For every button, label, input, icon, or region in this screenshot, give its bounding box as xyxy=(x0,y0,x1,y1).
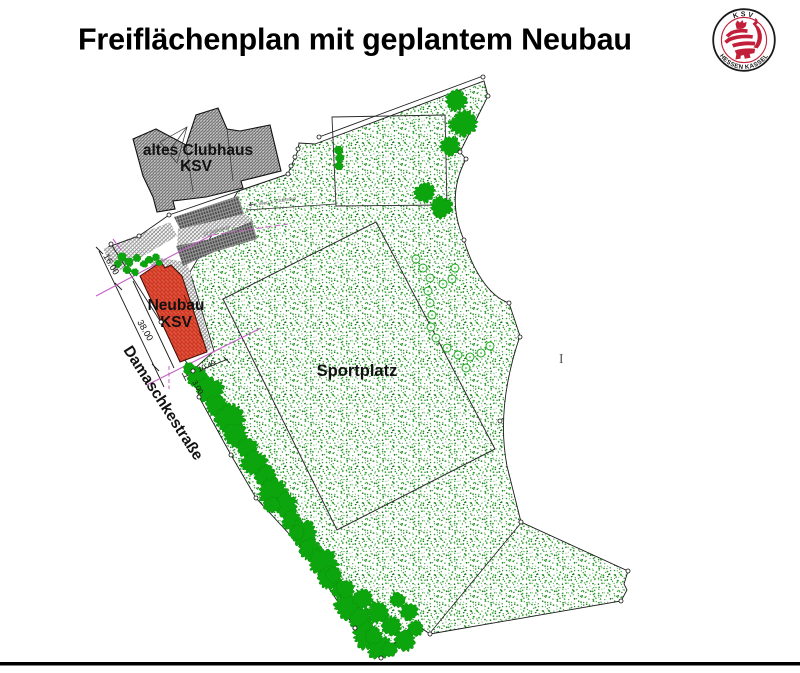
svg-text:KSV: KSV xyxy=(160,314,193,331)
svg-text:I: I xyxy=(559,351,564,366)
svg-text:Neubau: Neubau xyxy=(148,297,205,314)
svg-text:KSV: KSV xyxy=(180,158,213,175)
svg-text:altes Clubhaus: altes Clubhaus xyxy=(143,142,253,159)
svg-text:Sportplatz: Sportplatz xyxy=(317,362,398,380)
svg-text:Freiflächenplan mit geplantem: Freiflächenplan mit geplantem Neubau xyxy=(78,23,632,57)
